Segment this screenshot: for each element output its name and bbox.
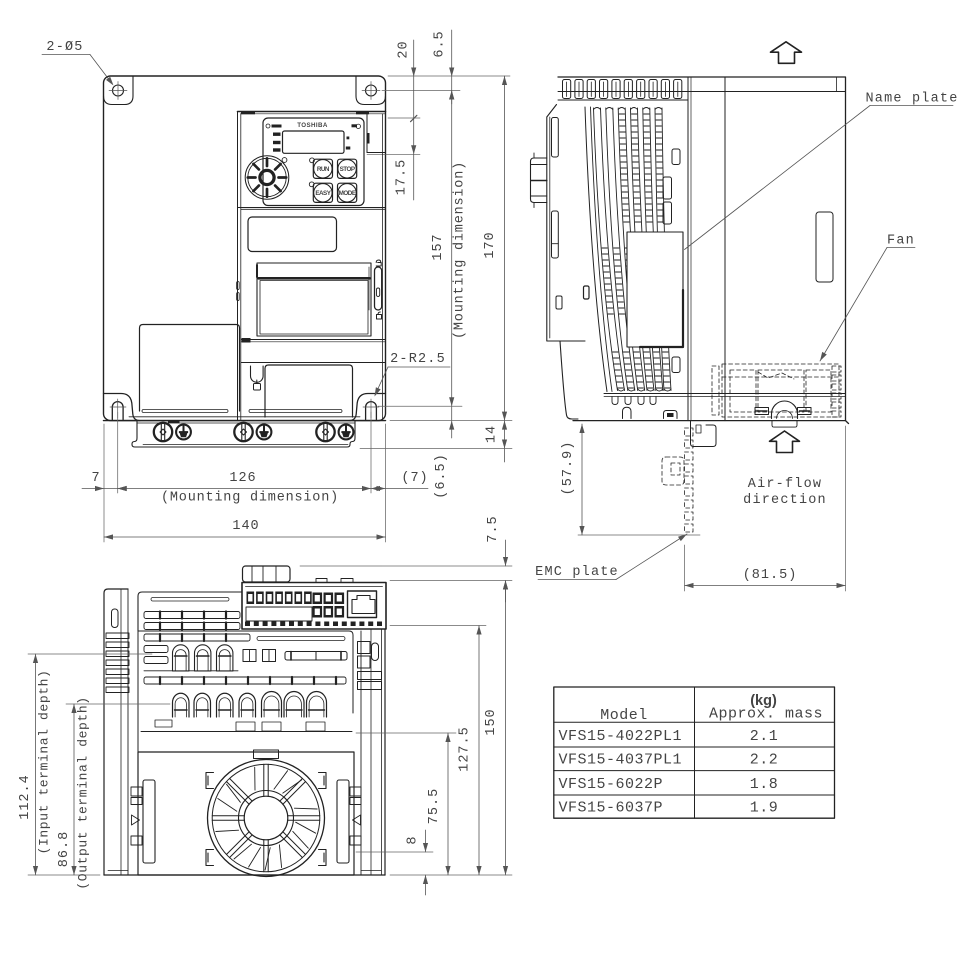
- svg-text:17.5: 17.5: [395, 159, 410, 195]
- svg-text:2-R2.5: 2-R2.5: [390, 352, 446, 367]
- svg-text:20: 20: [397, 40, 412, 58]
- svg-text:86.8: 86.8: [57, 831, 72, 867]
- svg-text:EASY: EASY: [315, 190, 331, 197]
- svg-text:(7): (7): [401, 471, 428, 486]
- svg-text:MODE: MODE: [339, 190, 356, 197]
- svg-text:126: 126: [229, 471, 256, 486]
- svg-text:VFS15-4022PL1: VFS15-4022PL1: [559, 728, 683, 745]
- svg-text:VFS15-4037PL1: VFS15-4037PL1: [559, 752, 683, 769]
- svg-text:VFS15-6022P: VFS15-6022P: [559, 776, 664, 793]
- svg-text:2.1: 2.1: [750, 728, 779, 745]
- svg-text:140: 140: [232, 519, 259, 534]
- svg-text:Name plate: Name plate: [865, 92, 958, 107]
- svg-text:2.2: 2.2: [750, 752, 779, 769]
- svg-text:(57.9): (57.9): [561, 441, 576, 496]
- svg-text:Approx. mass: Approx. mass: [709, 706, 823, 723]
- svg-text:1.8: 1.8: [750, 776, 779, 793]
- svg-text:14: 14: [485, 425, 500, 443]
- svg-text:6.5: 6.5: [433, 30, 448, 57]
- svg-text:150: 150: [484, 708, 499, 735]
- svg-text:Model: Model: [600, 707, 648, 724]
- svg-text:1.9: 1.9: [750, 800, 779, 817]
- svg-text:(Mounting dimension): (Mounting dimension): [453, 161, 468, 339]
- svg-text:7: 7: [91, 471, 100, 486]
- svg-text:112.4: 112.4: [18, 774, 33, 820]
- svg-text:(Input terminal depth): (Input terminal depth): [37, 670, 52, 855]
- svg-text:(Mounting dimension): (Mounting dimension): [161, 491, 339, 506]
- svg-text:157: 157: [431, 233, 446, 260]
- svg-text:Air-flow: Air-flow: [748, 477, 822, 492]
- svg-text:170: 170: [483, 231, 498, 258]
- svg-text:8: 8: [406, 835, 421, 844]
- svg-text:EMC plate: EMC plate: [535, 565, 619, 580]
- svg-text:TOSHIBA: TOSHIBA: [297, 122, 328, 129]
- svg-text:RUN: RUN: [317, 166, 330, 173]
- svg-text:(81.5): (81.5): [743, 568, 798, 583]
- svg-text:STOP: STOP: [340, 166, 355, 173]
- svg-text:75.5: 75.5: [427, 788, 442, 824]
- svg-text:direction: direction: [743, 493, 827, 508]
- svg-text:2-Ø5: 2-Ø5: [46, 40, 83, 55]
- svg-text:VFS15-6037P: VFS15-6037P: [559, 800, 664, 817]
- svg-text:Fan: Fan: [887, 234, 915, 249]
- svg-text:7.5: 7.5: [486, 515, 501, 542]
- svg-text:127.5: 127.5: [458, 726, 473, 772]
- svg-text:(6.5): (6.5): [434, 453, 449, 499]
- svg-text:(Output terminal depth): (Output terminal depth): [76, 696, 91, 889]
